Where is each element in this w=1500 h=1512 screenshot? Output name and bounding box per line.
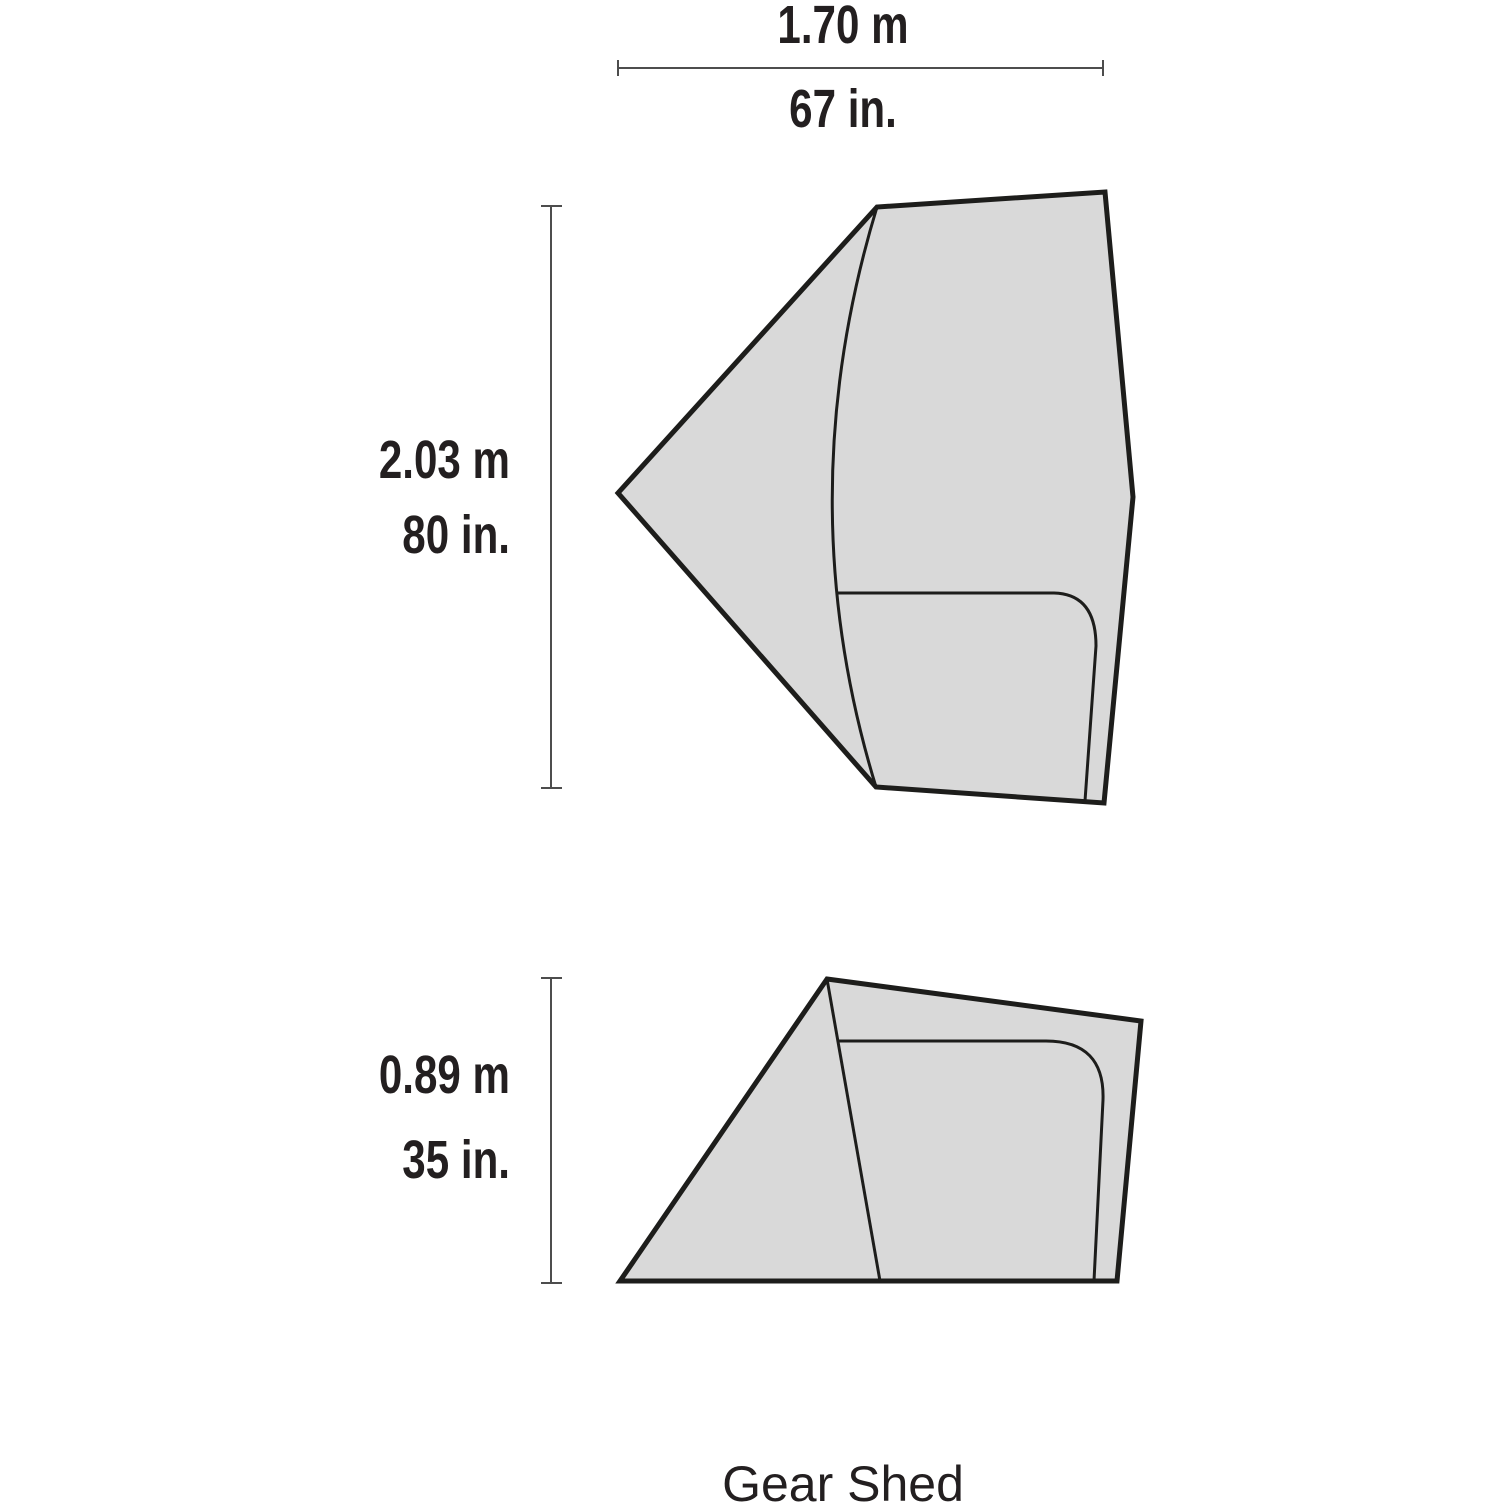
height-dimension-label-metric: 0.89 m — [276, 1048, 510, 1102]
product-title: Gear Shed — [543, 1459, 1143, 1509]
depth-dimension-label-imperial: 80 in. — [276, 508, 510, 562]
width-dimension-label-imperial: 67 in. — [609, 82, 1077, 136]
depth-dimension-line — [541, 206, 562, 788]
width-dimension-label-metric: 1.70 m — [609, 0, 1077, 52]
side-view — [620, 979, 1141, 1281]
depth-dimension-label-metric: 2.03 m — [276, 433, 510, 487]
diagram-canvas — [0, 0, 1500, 1500]
height-dimension-line — [541, 978, 562, 1283]
side-view-outline — [620, 979, 1141, 1281]
height-dimension-label-imperial: 35 in. — [276, 1133, 510, 1187]
top-view — [618, 192, 1133, 803]
top-view-outline — [618, 192, 1133, 803]
width-dimension-line — [618, 60, 1103, 76]
gear-shed-dimension-diagram: 1.70 m 67 in. 2.03 m 80 in. 0.89 m 35 in… — [0, 0, 1500, 1500]
